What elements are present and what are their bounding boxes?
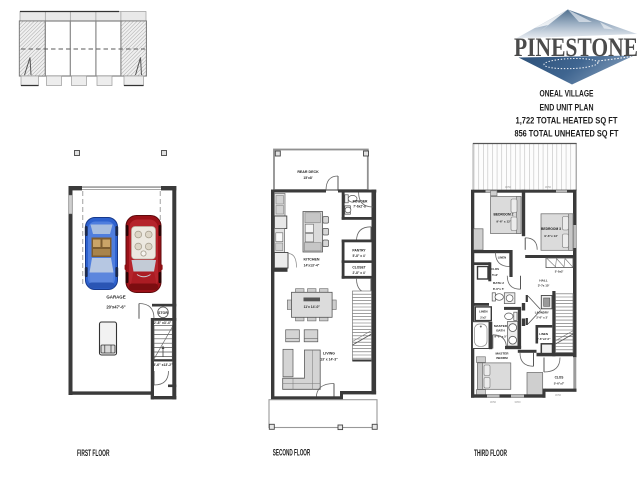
svg-text:3050: 3050 (545, 185, 552, 189)
svg-text:CLOS: CLOS (491, 267, 499, 271)
svg-text:PINESTONE: PINESTONE (514, 32, 638, 62)
svg-text:2'-6"x3'-6": 2'-6"x3'-6" (537, 337, 551, 341)
svg-text:9'-6"x 13': 9'-6"x 13' (544, 234, 558, 238)
svg-text:SECOND FLOOR: SECOND FLOOR (273, 448, 311, 458)
svg-text:9'-6" x 12': 9'-6" x 12' (496, 220, 511, 224)
svg-text:15'x8': 15'x8' (303, 176, 312, 180)
svg-text:REAR DECK: REAR DECK (297, 170, 319, 174)
svg-text:5'-8" x 4': 5'-8" x 4' (353, 254, 366, 258)
svg-text:13' x 14'-3": 13' x 14'-3" (320, 357, 338, 361)
svg-text:CLOSET: CLOSET (352, 266, 365, 270)
svg-text:20'x47'-6": 20'x47'-6" (106, 305, 125, 310)
svg-text:2'x2': 2'x2' (480, 315, 486, 319)
svg-text:3'-6" x13'-2": 3'-6" x13'-2" (153, 363, 173, 367)
svg-text:LINEN: LINEN (479, 309, 487, 313)
svg-text:LIVING: LIVING (323, 351, 335, 355)
svg-text:FIRST FLOOR: FIRST FLOOR (77, 448, 110, 458)
svg-text:BEDROOM 2: BEDROOM 2 (494, 213, 514, 217)
svg-text:3050: 3050 (555, 393, 562, 397)
svg-text:PANTRY: PANTRY (352, 248, 366, 252)
svg-text:THIRD FLOOR: THIRD FLOOR (474, 448, 507, 458)
svg-text:STOR: STOR (158, 311, 168, 315)
svg-text:3050: 3050 (505, 185, 512, 189)
svg-text:HALL: HALL (539, 278, 547, 282)
svg-text:3050: 3050 (514, 400, 521, 404)
svg-text:LAUNDRY: LAUNDRY (535, 310, 549, 314)
svg-text:BEDROOM 3: BEDROOM 3 (541, 227, 561, 231)
svg-text:ONEAL VILLAGE: ONEAL VILLAGE (540, 89, 594, 100)
svg-text:LINEN: LINEN (498, 256, 506, 260)
svg-text:END UNIT PLAN: END UNIT PLAN (540, 103, 594, 114)
svg-text:CLOS: CLOS (555, 376, 564, 380)
svg-text:2'-6" x 3': 2'-6" x 3' (536, 315, 548, 319)
svg-text:2'-8" x 4': 2'-8" x 4' (353, 271, 366, 275)
svg-text:MASTER: MASTER (495, 352, 509, 356)
svg-text:MASTER: MASTER (494, 324, 508, 328)
svg-text:1,722 TOTAL HEATED SQ FT: 1,722 TOTAL HEATED SQ FT (516, 116, 618, 127)
svg-text:856 TOTAL UNHEATED SQ FT: 856 TOTAL UNHEATED SQ FT (515, 129, 619, 140)
svg-text:BATH: BATH (496, 329, 505, 333)
svg-text:LINEN: LINEN (539, 332, 548, 336)
svg-text:2'-8" x3'-4": 2'-8" x3'-4" (154, 321, 172, 325)
svg-text:BEDRM: BEDRM (496, 356, 508, 360)
svg-text:BATH 2: BATH 2 (493, 281, 504, 285)
svg-text:3'-7x 15': 3'-7x 15' (538, 284, 550, 288)
svg-text:5'-0x2': 5'-0x2' (555, 270, 564, 274)
svg-text:11'x 14'-0": 11'x 14'-0" (304, 305, 321, 309)
svg-text:3050: 3050 (490, 400, 497, 404)
svg-text:5'-6"x7': 5'-6"x7' (554, 382, 565, 386)
svg-text:5'x2': 5'x2' (492, 273, 498, 277)
svg-text:GARAGE: GARAGE (106, 295, 125, 300)
svg-text:14'x13'-4": 14'x13'-4" (304, 263, 320, 267)
svg-text:KITCHEN: KITCHEN (304, 257, 320, 261)
svg-text:8'-6"x 5': 8'-6"x 5' (493, 287, 505, 291)
